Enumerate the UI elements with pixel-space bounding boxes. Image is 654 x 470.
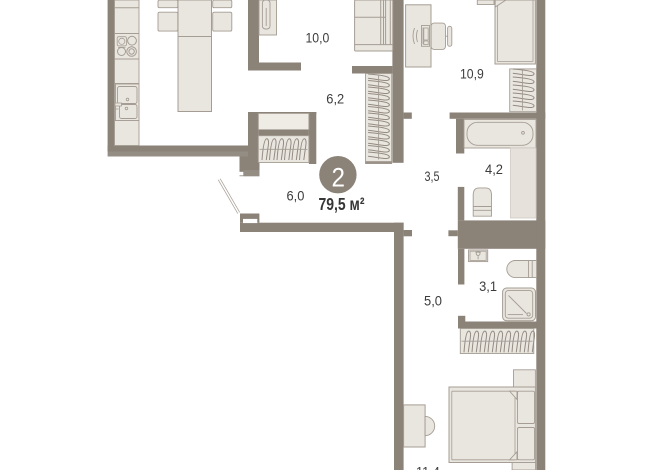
svg-text:4,2: 4,2 — [485, 162, 503, 177]
svg-text:79,5 м²: 79,5 м² — [319, 194, 365, 214]
svg-text:3,1: 3,1 — [479, 279, 497, 294]
svg-text:2: 2 — [331, 163, 345, 193]
svg-text:3,5: 3,5 — [425, 169, 440, 184]
svg-text:11,4: 11,4 — [416, 464, 440, 470]
svg-text:5,0: 5,0 — [424, 293, 442, 308]
svg-text:10,0: 10,0 — [306, 31, 330, 46]
svg-text:6,2: 6,2 — [326, 92, 344, 107]
svg-text:10,9: 10,9 — [460, 66, 484, 81]
svg-text:6,0: 6,0 — [287, 189, 305, 204]
